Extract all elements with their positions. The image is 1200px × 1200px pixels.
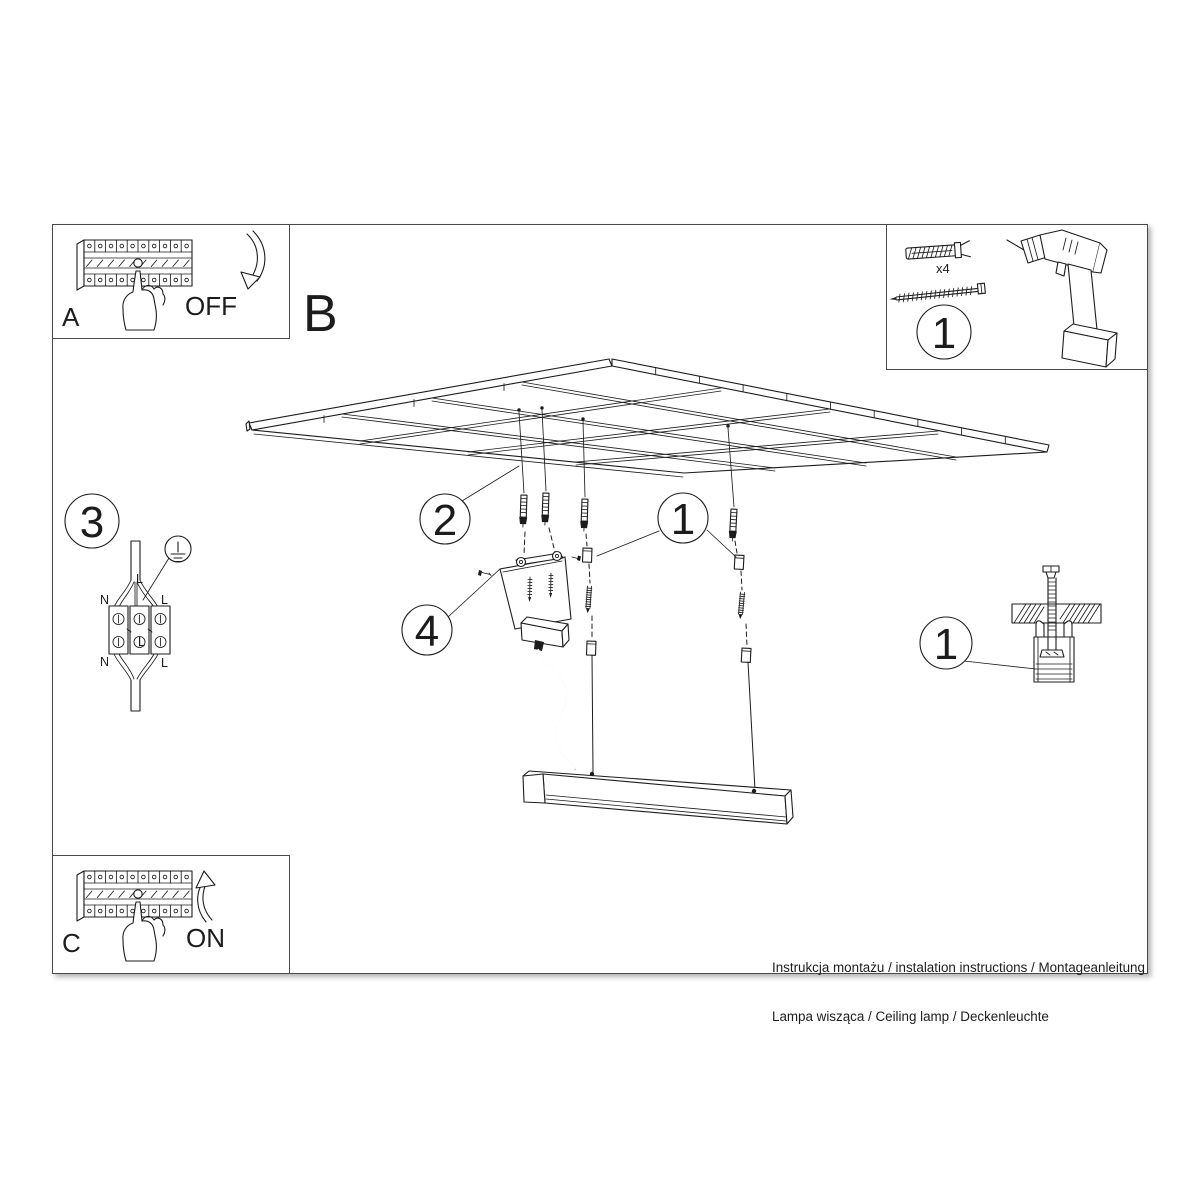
wiring-diagram: 3 L N L L N L [65, 494, 191, 711]
callout-bracket: 4 [402, 569, 500, 656]
power-on-label: ON [186, 925, 225, 951]
anchor-count-label: x4 [936, 262, 950, 275]
wire-label-l-right: L [161, 593, 168, 607]
step-c-label: C [62, 930, 81, 956]
footer-text: Instrukcja montażu / instalation instruc… [772, 927, 1145, 1058]
callout-anchor-number: 1 [934, 620, 958, 669]
callout-tools: 1 [917, 305, 971, 359]
wire-label-n-bottom: N [100, 655, 109, 669]
anchor-detail [1012, 566, 1101, 682]
wire-label-l-top: L [136, 572, 143, 586]
pendant-lamp [523, 771, 793, 824]
wire-label-l-bottom: L [161, 656, 168, 670]
callout-anchor-detail: 1 [920, 617, 1036, 669]
driver-box [521, 617, 569, 651]
footer-line-1: Instrukcja montażu / instalation instruc… [772, 960, 1145, 976]
callout-suspension-number: 1 [671, 495, 695, 544]
wall-plug-icon [905, 241, 970, 261]
step-a-label: A [62, 304, 79, 330]
mounting-bracket [478, 552, 581, 770]
callout-ceiling-number: 2 [433, 496, 457, 545]
footer-line-2: Lampa wisząca / Ceiling lamp / Deckenleu… [772, 1009, 1145, 1025]
callout-suspension: 1 [597, 493, 736, 557]
power-cable [538, 649, 575, 769]
power-off-label: OFF [185, 293, 237, 319]
wire-label-l-center: L [138, 635, 145, 649]
arrow-down-icon [241, 231, 265, 289]
drill-icon [1007, 230, 1117, 367]
callout-ceiling: 2 [420, 466, 519, 545]
instruction-sheet: 1 3 L N L [0, 0, 1200, 1200]
arrow-up-icon [196, 871, 215, 922]
wiring-step-number: 3 [80, 498, 104, 547]
wire-label-n-left: N [100, 593, 109, 607]
callout-bracket-number: 4 [415, 607, 439, 656]
section-label-b: B [303, 288, 338, 340]
screw-icon [889, 283, 986, 303]
tools-step-number: 1 [932, 309, 956, 358]
ceiling-grid [246, 359, 1049, 477]
